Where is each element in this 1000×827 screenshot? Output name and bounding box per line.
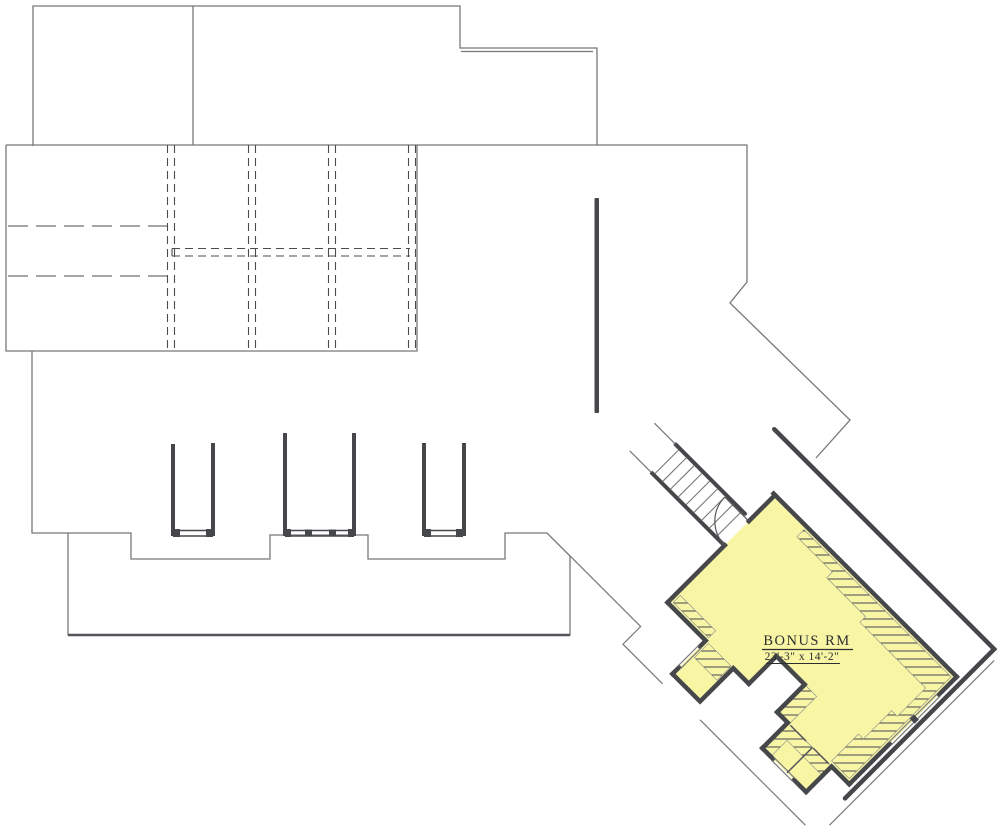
interior-thick-wall <box>595 198 600 413</box>
window-jamb <box>348 529 354 537</box>
lower-eave-outline <box>32 351 570 559</box>
floor-plan-drawing: BONUS RM 23'-3" x 14'-2" <box>0 0 1000 827</box>
bonus-room-label: BONUS RM <box>763 633 850 649</box>
lower-footprint-outline <box>68 533 570 635</box>
dormer-1 <box>173 443 213 537</box>
stair-stringer-right <box>676 444 745 513</box>
dormers <box>173 433 464 537</box>
window-jamb <box>206 529 213 537</box>
window-jamb <box>173 529 180 537</box>
bonus-room-group <box>528 366 1000 827</box>
main-house-outline <box>6 6 850 635</box>
roof-upper-outline <box>33 6 850 458</box>
roof-framing-dashed <box>8 145 416 351</box>
dormer-3 <box>424 443 464 537</box>
window-jamb <box>424 529 431 537</box>
window-mullion <box>305 530 312 537</box>
window-jamb <box>285 529 291 537</box>
roof-plan-rect <box>6 145 597 351</box>
stair-stringer-ext <box>628 423 677 472</box>
window-mullion <box>329 530 336 537</box>
window-jamb <box>456 529 463 537</box>
floor-plan-canvas: BONUS RM 23'-3" x 14'-2" <box>0 0 1000 827</box>
staircase <box>628 423 750 545</box>
stair-treads <box>655 450 741 536</box>
bonus-room-dimensions: 23'-3" x 14'-2" <box>765 651 840 663</box>
bonus-room-annotation: BONUS RM 23'-3" x 14'-2" <box>762 633 853 664</box>
dashed-ridge-lines <box>8 226 168 276</box>
roofline-nw-notch <box>552 556 680 684</box>
dashed-beam-lines <box>172 249 410 257</box>
dormer-2 <box>285 433 354 537</box>
